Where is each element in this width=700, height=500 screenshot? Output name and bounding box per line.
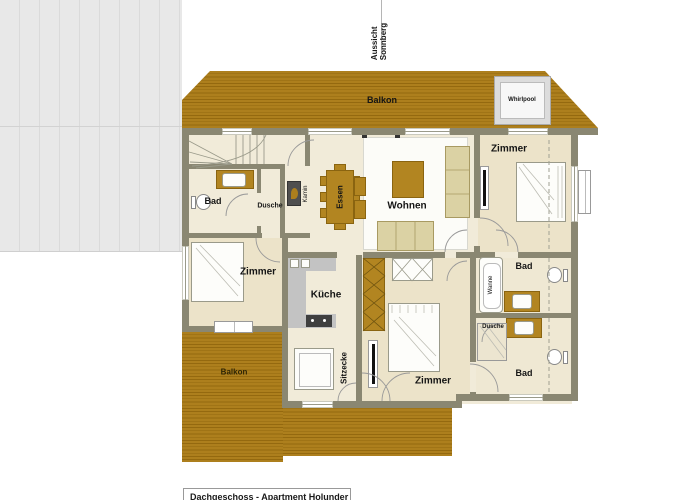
window [308,128,352,135]
radiator-bar [483,170,486,206]
sink-icon [222,173,246,187]
room-label-bathtub: Wanne [488,276,494,295]
window [405,128,450,135]
cooktop-icon [301,259,310,268]
caption-text: Dachgeschoss - Apartment Holunder [190,492,348,500]
room-label-balcony-top: Balkon [367,95,397,105]
wall-segment [182,128,189,332]
balcony-bottom-left [182,332,283,462]
wall-segment [257,226,261,233]
wall-segment [470,258,476,362]
knob-icon [311,319,314,322]
room-label-whirlpool: Whirlpool [508,97,536,103]
sofa [445,146,470,218]
wall-segment [189,164,285,169]
wall-segment [356,255,362,401]
sink-icon [514,321,534,335]
toilet-icon [547,349,562,365]
roof-ridge-line [0,126,182,127]
flame-icon [291,188,298,199]
room-label-bedroom-bottom: Zimmer [415,376,451,387]
bed [516,162,566,222]
balcony-bottom-strip [283,406,452,456]
sofa [377,221,434,251]
room-label-bath-bottom: Bad [515,368,532,378]
chair [334,223,346,230]
stove-sink-unit [306,315,332,327]
window [571,166,578,222]
wall-segment [280,164,285,238]
toilet-icon [563,269,568,282]
wardrobe [392,258,433,281]
floor-plan: Aussicht Sonnberg [0,0,700,500]
sitting-table-inner [299,353,331,387]
wardrobe [363,258,385,331]
wall-segment [305,134,310,166]
wall-segment [257,169,261,193]
room-label-shower-right: Dusche [482,324,504,330]
caption-box: Dachgeschoss - Apartment Holunder [183,488,351,500]
room-label-bath-mid: Bad [515,261,532,271]
window [302,401,333,408]
room-label-dining: Essen [336,185,345,209]
room-label-fireplace: Kamin [303,185,309,202]
window [182,246,189,300]
window-box [214,321,253,333]
room-label-bedroom-left: Zimmer [240,267,276,278]
window [222,128,252,135]
room-label-kitchen: Küche [311,290,342,301]
wall-fixture [362,135,367,138]
window-box [578,170,591,214]
wall-segment [182,233,262,238]
room-label-shower-left: Dusche [257,203,282,210]
sonnberg-text: Sonnberg [379,0,388,60]
chair [320,208,327,218]
sink-icon [512,294,532,309]
chair [334,164,346,171]
toilet-icon [563,351,568,364]
toilet-icon [547,267,562,283]
aussicht-text: Aussicht [370,0,379,60]
cooktop-icon [290,259,299,268]
wall-segment [282,326,288,408]
room-label-bath-left: Bad [204,196,221,206]
chair [320,192,327,202]
coffee-table [392,161,424,198]
room-label-balcony-bottom: Balkon [221,368,248,377]
bed [388,303,440,372]
window [509,394,543,401]
armchair [354,200,366,219]
knob-icon [323,319,326,322]
radiator-bar [372,344,375,384]
room-label-sitting-corner: Sitzecke [340,352,349,384]
wall-segment [470,392,476,401]
view-direction-label: Aussicht Sonnberg [370,0,388,60]
wall-fixture [395,135,400,138]
room-label-living: Wohnen [387,201,426,212]
armchair [354,177,366,196]
chair [320,176,327,186]
window [508,128,548,135]
room-label-bedroom-top-right: Zimmer [491,144,527,155]
wall-segment [518,252,578,258]
bed [191,242,244,302]
wall-segment [474,246,480,252]
